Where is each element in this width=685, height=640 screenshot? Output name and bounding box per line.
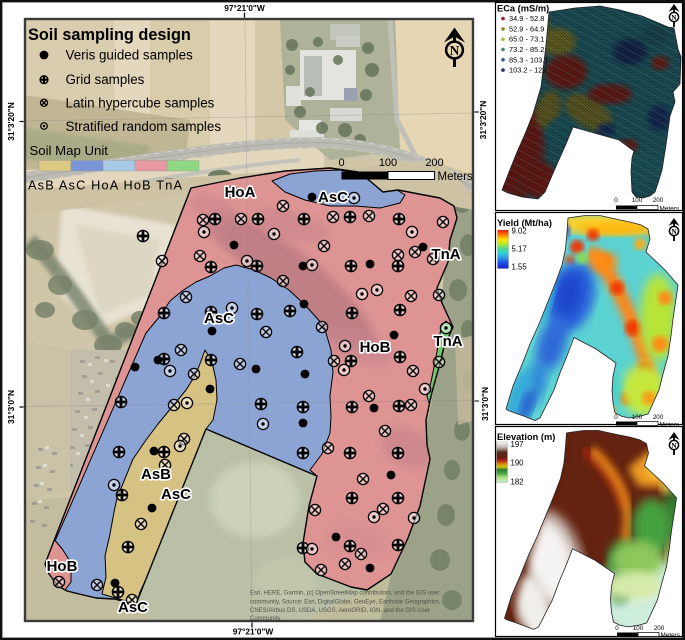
svg-text:100: 100 [632,197,643,204]
svg-text:Grid samples: Grid samples [66,72,145,87]
svg-text:31°3'0"N: 31°3'0"N [480,387,490,421]
svg-text:31°3'0"N: 31°3'0"N [6,390,16,424]
svg-text:community, Source: Esri, Digit: community, Source: Esri, DigitalGlobe, G… [250,600,441,606]
svg-text:73.2 - 85.2: 73.2 - 85.2 [509,45,544,54]
svg-text:Latin hypercube samples: Latin hypercube samples [66,96,215,111]
svg-text:0: 0 [614,197,618,204]
svg-text:200: 200 [425,157,443,169]
svg-text:97°21'0"W: 97°21'0"W [233,627,274,637]
svg-text:Stratified random samples: Stratified random samples [66,119,222,134]
svg-text:100: 100 [633,625,644,632]
svg-text:HoB: HoB [47,558,78,575]
svg-text:Meters: Meters [438,171,473,183]
svg-text:5.17: 5.17 [512,245,527,254]
svg-text:AsB AsC HoA HoB TnA: AsB AsC HoA HoB TnA [28,179,183,193]
svg-text:HoA: HoA [225,184,256,201]
svg-text:Veris guided samples: Veris guided samples [66,48,194,63]
svg-text:31°3'20"N: 31°3'20"N [478,101,488,140]
svg-text:AsC: AsC [118,599,148,616]
svg-text:34.9 - 52.8: 34.9 - 52.8 [509,14,544,23]
svg-text:31°3'20"N: 31°3'20"N [6,102,16,141]
svg-text:182: 182 [511,478,524,487]
svg-text:AsC: AsC [318,189,348,206]
svg-text:N: N [671,227,677,236]
svg-text:0: 0 [338,157,344,169]
svg-text:TnA: TnA [433,333,462,350]
svg-text:AsC: AsC [204,310,234,327]
svg-text:CNES/Airbus DS, USDA, USGS, Ae: CNES/Airbus DS, USDA, USGS, AeroGRID, IG… [250,608,430,614]
svg-text:200: 200 [653,414,664,421]
svg-text:52.9 - 64.9: 52.9 - 64.9 [509,24,544,33]
svg-text:0: 0 [614,414,618,421]
svg-text:Elevation (m): Elevation (m) [497,432,555,442]
svg-text:9.02: 9.02 [512,227,527,236]
svg-text:AsB: AsB [141,466,171,483]
svg-text:N: N [671,13,677,22]
svg-text:N: N [671,441,677,450]
svg-text:N: N [450,43,460,58]
svg-text:190: 190 [511,459,525,468]
svg-text:0: 0 [615,625,619,632]
svg-text:HoB: HoB [360,339,391,356]
svg-text:TnA: TnA [431,246,460,263]
svg-text:Esri, HERE, Garmin, (c) OpenSt: Esri, HERE, Garmin, (c) OpenStreetMap co… [250,591,439,597]
svg-text:85.3 - 103.1: 85.3 - 103.1 [509,55,548,64]
svg-text:97°21'0"W: 97°21'0"W [224,3,265,13]
svg-text:Soil Map Unit: Soil Map Unit [30,143,109,158]
svg-text:200: 200 [653,197,664,204]
svg-text:103.2 - 129: 103.2 - 129 [509,66,546,75]
svg-text:1.55: 1.55 [512,263,528,272]
svg-text:100: 100 [632,414,643,421]
svg-text:100: 100 [379,157,397,169]
svg-text:Meters: Meters [660,206,680,213]
svg-text:Soil sampling design: Soil sampling design [28,26,191,44]
svg-text:AsC: AsC [161,486,191,503]
svg-text:200: 200 [654,625,665,632]
svg-text:197: 197 [511,440,524,449]
svg-text:ECa (mS/m): ECa (mS/m) [497,4,549,14]
svg-text:65.0 - 73.1: 65.0 - 73.1 [509,35,544,44]
